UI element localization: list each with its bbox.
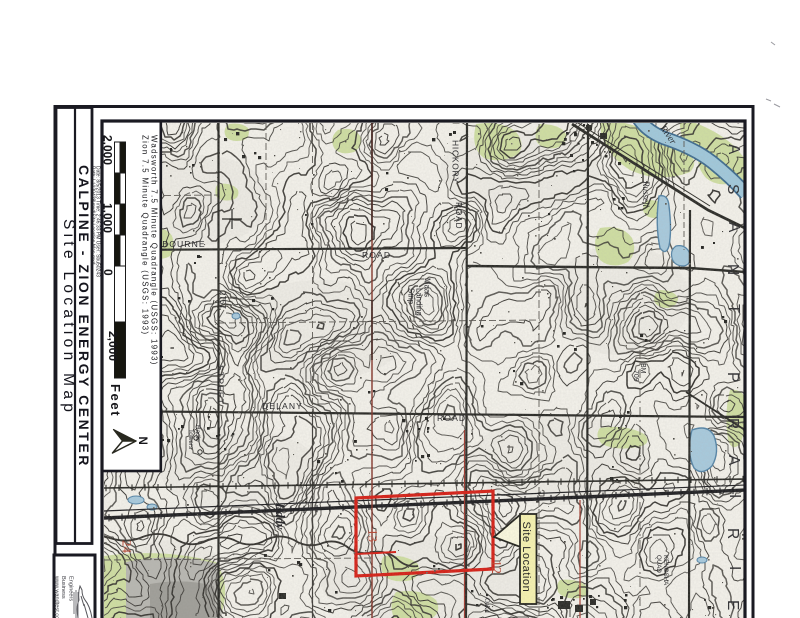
svg-text:Wadsworth 7.5 Minute Quadrangl: Wadsworth 7.5 Minute Quadrangle (USGS: 1… [150,135,159,366]
svg-text:Business: Business [60,576,66,599]
svg-text:Date: 8/5/2013 Time: 2:46:33: Date: 8/5/2013 Time: 2:46:33 PM User: Sb… [95,166,101,277]
svg-text:www.wandtest.com: www.wandtest.com [54,575,60,618]
svg-text:Zion 7.5 Minute Quadrangle (US: Zion 7.5 Minute Quadrangle (USGS: 1993) [141,135,150,335]
svg-text:Feet: Feet [108,384,123,417]
svg-text:N: N [136,437,148,445]
svg-text:Engineers: Engineers [68,576,74,601]
svg-text:Site Location Map: Site Location Map [60,219,77,416]
svg-text:2,000: 2,000 [106,331,120,361]
